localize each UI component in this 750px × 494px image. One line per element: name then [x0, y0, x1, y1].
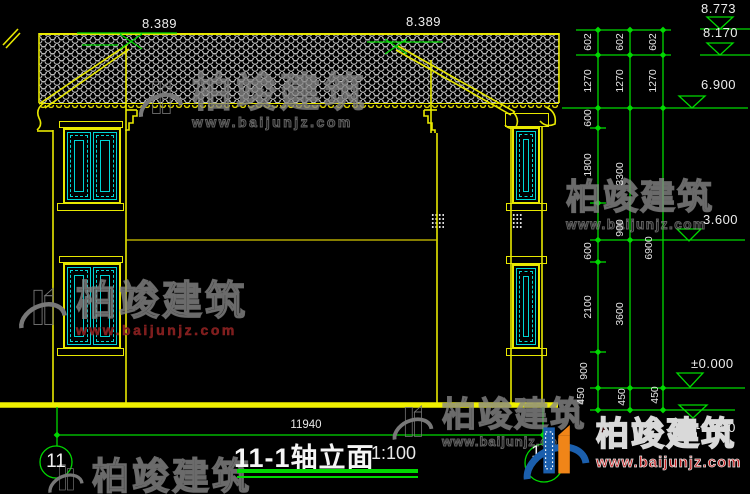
ridge-level-label: 8.389 — [406, 14, 441, 29]
dim-label: 450 — [575, 387, 587, 405]
watermark-url: www.baijunjz.com — [192, 114, 368, 130]
watermark-brand: 柏竣建筑 — [192, 72, 368, 114]
dim-label: 1270 — [614, 69, 626, 92]
axis-number-left: 11 — [46, 451, 66, 473]
elevation-label: 8.773 — [701, 1, 736, 16]
dim-label: 1800 — [582, 153, 594, 176]
dim-label: 3300 — [614, 162, 626, 185]
title-underline — [237, 469, 418, 473]
watermark-url: www.baijunjz.com — [76, 322, 248, 338]
dim-label: 900 — [614, 219, 626, 237]
brand-logo-icon — [520, 417, 592, 493]
watermark: 柏竣建筑 www.baijunjz.com — [46, 458, 252, 494]
dim-label: 600 — [582, 109, 594, 127]
dim-label: 3600 — [614, 302, 626, 325]
watermark-url: www.baijunjz.com — [566, 217, 714, 232]
drawing-scale: 1:100 — [371, 443, 416, 464]
watermark-brand: 柏竣建筑 — [92, 458, 252, 494]
dim-label: 602 — [647, 33, 659, 51]
watermark-brand: 柏竣建筑 — [566, 180, 714, 217]
overall-width-dim: 11940 — [290, 419, 321, 431]
dim-label: 602 — [582, 33, 594, 51]
dim-label: 2100 — [582, 295, 594, 318]
dim-label: 1270 — [582, 69, 594, 92]
watermark: 柏竣建筑 www.baijunjz.com — [16, 280, 248, 342]
dim-label: 900 — [578, 362, 590, 380]
watermark-brand: 柏竣建筑 — [596, 417, 741, 452]
cad-elevation-drawing: 8.389 8.389 8.773 8.170 6.900 3.600 ±0.0… — [0, 0, 750, 494]
brand-watermark: 柏竣建筑 www.baijunjz.com — [520, 417, 741, 493]
watermark-brand: 柏竣建筑 — [76, 280, 248, 322]
elevation-label: 3.600 — [703, 212, 738, 227]
elevation-label: 6.900 — [701, 77, 736, 92]
dim-label: 450 — [649, 386, 661, 404]
ridge-level-label: 8.389 — [142, 16, 177, 31]
elevation-label: 8.170 — [703, 25, 738, 40]
brand-logo-icon — [16, 280, 70, 342]
watermark: 柏竣建筑 www.baijunjz.com — [136, 72, 368, 130]
dim-label: 1270 — [647, 69, 659, 92]
watermark-url: www.baijunjz.com — [596, 454, 741, 471]
dim-label: 602 — [614, 33, 626, 51]
dim-label: 450 — [616, 388, 628, 406]
dim-label: 6900 — [643, 236, 655, 259]
watermark: 柏竣建筑 www.baijunjz.com — [566, 180, 714, 232]
dim-label: 600 — [582, 242, 594, 260]
title-underline — [237, 476, 418, 478]
elevation-label: ±0.000 — [691, 356, 734, 371]
brand-logo-icon — [136, 72, 186, 130]
